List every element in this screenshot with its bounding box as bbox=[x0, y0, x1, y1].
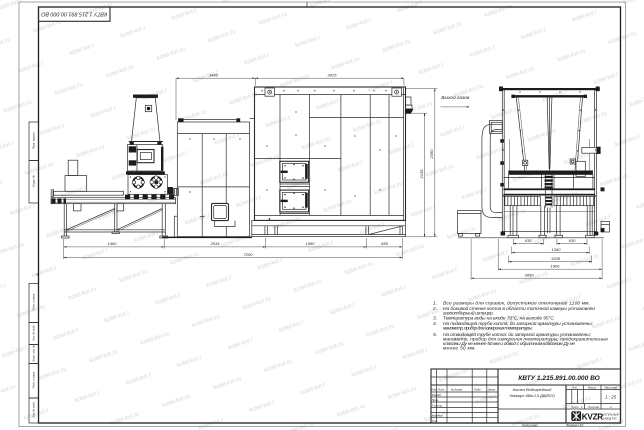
svg-text:Дата: Дата bbox=[487, 388, 496, 392]
svg-text:4.: 4. bbox=[433, 321, 437, 327]
svg-text:Лит.: Лит. bbox=[570, 386, 578, 390]
svg-text:1950: 1950 bbox=[306, 241, 316, 246]
svg-text:Температура воды на входе 70°С: Температура воды на входе 70°С, на выход… bbox=[443, 316, 555, 322]
svg-text:Листов: Листов bbox=[587, 405, 599, 409]
svg-text:2135: 2135 bbox=[419, 169, 424, 180]
svg-text:КВТУ 1.215.891.00.000 ВО: КВТУ 1.215.891.00.000 ВО bbox=[41, 10, 108, 16]
svg-text:1485: 1485 bbox=[209, 72, 219, 77]
svg-text:630: 630 bbox=[569, 238, 576, 243]
svg-text:Котел Водогрейный: Котел Водогрейный bbox=[513, 387, 552, 392]
svg-text:3025: 3025 bbox=[328, 72, 338, 77]
svg-text:Н.контр.: Н.контр. bbox=[432, 414, 444, 418]
svg-text:«Квазар»-КВм-2,5-ДВ(ВПУ): «Квазар»-КВм-2,5-ДВ(ВПУ) bbox=[509, 394, 555, 398]
svg-text:Утв.: Утв. bbox=[432, 419, 438, 423]
svg-text:Подп. и дата: Подп. и дата bbox=[32, 371, 36, 388]
svg-text:КВТУ 1.215.891.00.000 ВО: КВТУ 1.215.891.00.000 ВО bbox=[518, 375, 600, 382]
svg-text:1360: 1360 bbox=[552, 247, 562, 252]
svg-text:2: 2 bbox=[609, 405, 612, 409]
svg-text:5.: 5. bbox=[433, 332, 437, 338]
svg-text:Справ. №: Справ. № bbox=[32, 175, 36, 187]
svg-text:КОТЕЛЬНЫЙ: КОТЕЛЬНЫЙ bbox=[603, 413, 619, 416]
svg-text:KVZR: KVZR bbox=[582, 412, 603, 421]
svg-text:Инв. № подл.: Инв. № подл. bbox=[32, 401, 36, 418]
svg-text:Все размеры для справок, допус: Все размеры для справок, допустимое откл… bbox=[443, 301, 590, 307]
svg-text:2.: 2. bbox=[432, 306, 437, 312]
svg-text:Формат А2: Формат А2 bbox=[566, 423, 584, 427]
svg-text:Подп. и дата: Подп. и дата bbox=[32, 293, 36, 310]
svg-text:Подп.: Подп. bbox=[474, 388, 481, 392]
svg-text:манометр, прибор для измерения: манометр, прибор для измерения температу… bbox=[443, 326, 533, 332]
svg-text:Разраб.: Разраб. bbox=[432, 393, 442, 397]
svg-text:1.: 1. bbox=[433, 301, 437, 307]
svg-text:Перв. примен.: Перв. примен. bbox=[32, 131, 36, 149]
svg-text:3.: 3. bbox=[433, 316, 437, 322]
svg-text:1460: 1460 bbox=[108, 241, 118, 246]
svg-text:Лист: Лист bbox=[570, 405, 579, 409]
svg-text:газоотборный штуцер.: газоотборный штуцер. bbox=[443, 309, 494, 316]
svg-text:Взам. инв. №: Взам. инв. № bbox=[32, 345, 36, 362]
svg-text:Лист: Лист bbox=[437, 388, 446, 392]
svg-text:Инв. № дубл.: Инв. № дубл. bbox=[32, 324, 36, 341]
svg-text:7200: 7200 bbox=[244, 252, 254, 257]
svg-text:2034: 2034 bbox=[210, 241, 221, 246]
svg-text:Масса: Масса bbox=[588, 386, 596, 390]
svg-text:Пров.: Пров. bbox=[432, 398, 439, 402]
svg-text:№ докум.: № докум. bbox=[451, 388, 463, 392]
svg-text:685: 685 bbox=[381, 241, 388, 246]
svg-text:Т.контр.: Т.контр. bbox=[432, 404, 443, 408]
svg-text:1538: 1538 bbox=[551, 256, 561, 261]
svg-text:1906: 1906 bbox=[551, 264, 561, 269]
svg-text:Масштаб: Масштаб bbox=[604, 386, 617, 390]
svg-text:Изм: Изм bbox=[431, 388, 436, 392]
svg-text:1 : 25: 1 : 25 bbox=[605, 395, 617, 400]
svg-text:ЗАВОД РУС: ЗАВОД РУС bbox=[603, 417, 617, 420]
svg-text:630: 630 bbox=[525, 238, 532, 243]
svg-text:Выход газов: Выход газов bbox=[441, 95, 469, 101]
svg-text:Копировал: Копировал bbox=[522, 423, 538, 427]
svg-text:3050: 3050 bbox=[525, 273, 535, 278]
svg-text:2350: 2350 bbox=[429, 149, 434, 160]
svg-text:менее 50 мм.: менее 50 мм. bbox=[443, 346, 476, 352]
